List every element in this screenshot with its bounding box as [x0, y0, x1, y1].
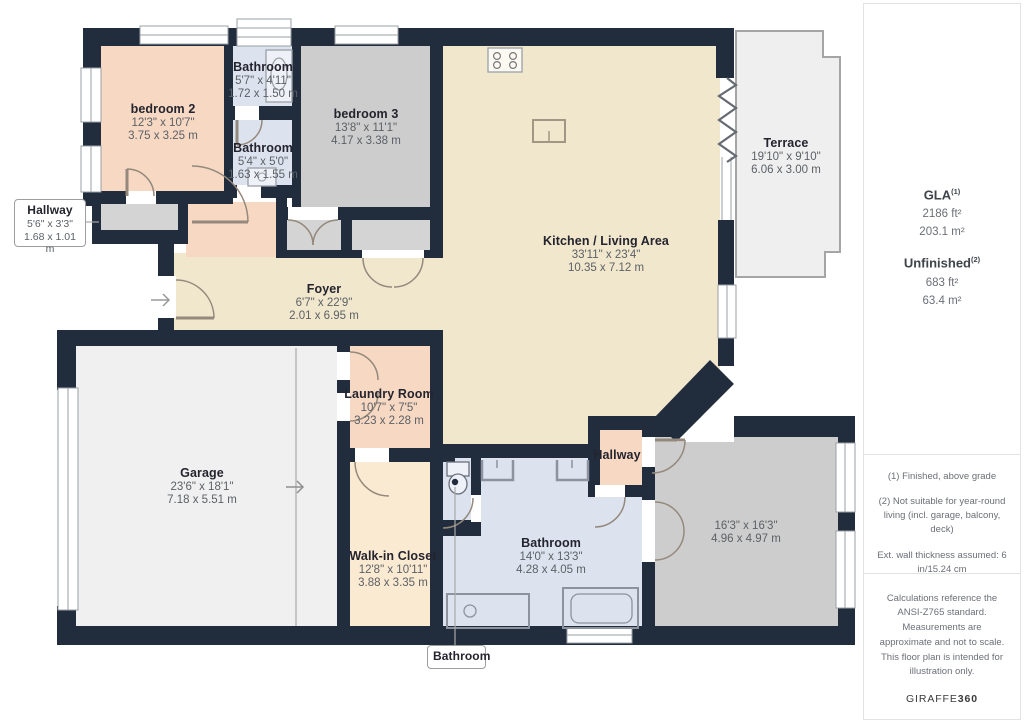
- floor-plan-page: bedroom 2 12'3" x 10'7" 3.75 x 3.25 m Ba…: [0, 0, 1024, 724]
- area-summary-section: GLA(1) 2186 ft² 203.1 m² Unfinished(2) 6…: [863, 3, 1021, 455]
- unfinished-heading: Unfinished(2): [864, 255, 1020, 270]
- gla-sqm: 203.1 m²: [864, 226, 1020, 238]
- footnote-1: (1) Finished, above grade: [874, 470, 1010, 484]
- stove-icon: [488, 48, 522, 72]
- gla-block: GLA(1) 2186 ft² 203.1 m² Unfinished(2) 6…: [864, 187, 1020, 307]
- unfinished-sqft: 683 ft²: [864, 277, 1020, 289]
- footnotes-section: (1) Finished, above grade (2) Not suitab…: [863, 455, 1021, 574]
- info-sidebar: GLA(1) 2186 ft² 203.1 m² Unfinished(2) 6…: [863, 3, 1021, 720]
- giraffe360-logo: GIRAFFE360: [876, 693, 1008, 705]
- unfinished-sqm: 63.4 m²: [864, 295, 1020, 307]
- terrace-floor: [736, 31, 840, 277]
- toilet-icon: [447, 462, 469, 494]
- gla-heading: GLA(1): [864, 187, 1020, 202]
- disclaimer-text: Calculations reference the ANSI-Z765 sta…: [876, 592, 1008, 680]
- gla-sqft: 2186 ft²: [864, 208, 1020, 220]
- footnote-2: (2) Not suitable for year-round living (…: [874, 495, 1010, 538]
- sink-icon: [248, 168, 276, 186]
- garage-floor: [66, 340, 345, 628]
- bathtub-icon: [266, 50, 292, 102]
- disclaimer-section: Calculations reference the ANSI-Z765 sta…: [863, 574, 1021, 720]
- zigzag-wall-icon: [719, 78, 736, 162]
- hallway-callout: Hallway 5'6" x 3'3" 1.68 x 1.01 m: [14, 199, 86, 247]
- bathroom-callout: Bathroom: [427, 645, 486, 669]
